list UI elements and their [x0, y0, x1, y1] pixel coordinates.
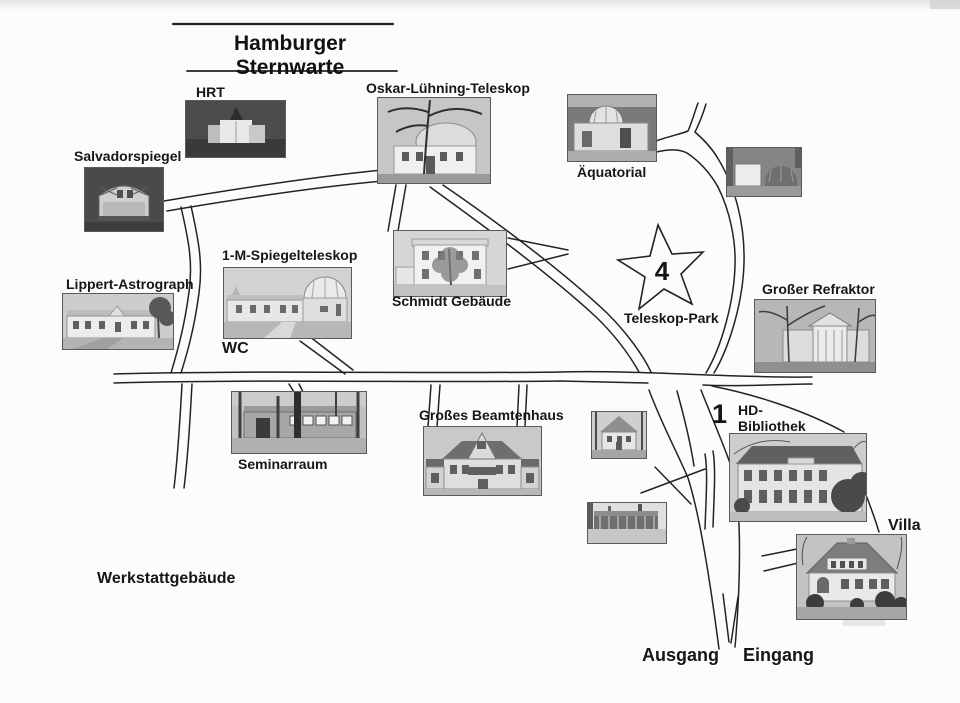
- label-hd-line1: HD-: [738, 402, 763, 418]
- photo-1m-spiegelteleskop: [224, 268, 351, 338]
- photo-hd-bibliothek: [730, 434, 866, 521]
- label-hd-line2: Bibliothek: [738, 418, 806, 434]
- label-grosser-refraktor: Großer Refraktor: [762, 281, 875, 297]
- label-aequatorial: Äquatorial: [577, 164, 646, 180]
- photo-salvadorspiegel: [85, 168, 163, 231]
- photo-oskar-luehning-teleskop: [378, 98, 490, 183]
- label-schmidt-gebaeude: Schmidt Gebäude: [392, 293, 511, 309]
- photo-aequatorial: [568, 95, 656, 161]
- photo-small-house: [592, 412, 646, 458]
- map-canvas: Hamburger Sternwarte HRT Oskar-Lühning-T…: [0, 0, 960, 703]
- label-hrt: HRT: [196, 84, 225, 100]
- label-villa: Villa: [888, 517, 921, 535]
- page-title: Hamburger Sternwarte: [180, 32, 400, 80]
- label-werkstattgebaeude: Werkstattgebäude: [97, 570, 235, 588]
- label-salvadorspiegel: Salvadorspiegel: [74, 148, 181, 164]
- photo-dome-building: [727, 148, 801, 196]
- photo-schmidt-gebaeude: [394, 231, 506, 296]
- marker-number-teleskop-park: 4: [650, 256, 674, 287]
- photo-villa: [797, 535, 906, 619]
- label-grosses-beamtenhaus: Großes Beamtenhaus: [419, 407, 564, 423]
- label-1m-spiegelteleskop: 1-M-Spiegelteleskop: [222, 247, 357, 263]
- label-teleskop-park: Teleskop-Park: [624, 310, 719, 326]
- photo-hrt: [186, 101, 285, 157]
- photo-lippert-astrograph: [63, 294, 173, 349]
- label-wc: WC: [222, 340, 249, 358]
- label-oskar-luehning-teleskop: Oskar-Lühning-Teleskop: [366, 80, 530, 96]
- label-ausgang: Ausgang: [642, 645, 719, 666]
- photo-grosses-beamtenhaus: [424, 427, 541, 495]
- marker-number-hd-bibliothek: 1: [712, 399, 727, 430]
- label-seminarraum: Seminarraum: [238, 456, 327, 472]
- photo-seminarraum: [232, 392, 366, 453]
- photo-grosser-refraktor: [755, 300, 875, 372]
- label-eingang: Eingang: [743, 645, 814, 666]
- photo-greenhouse: [588, 503, 666, 543]
- label-lippert-astrograph: Lippert-Astrograph: [66, 276, 194, 292]
